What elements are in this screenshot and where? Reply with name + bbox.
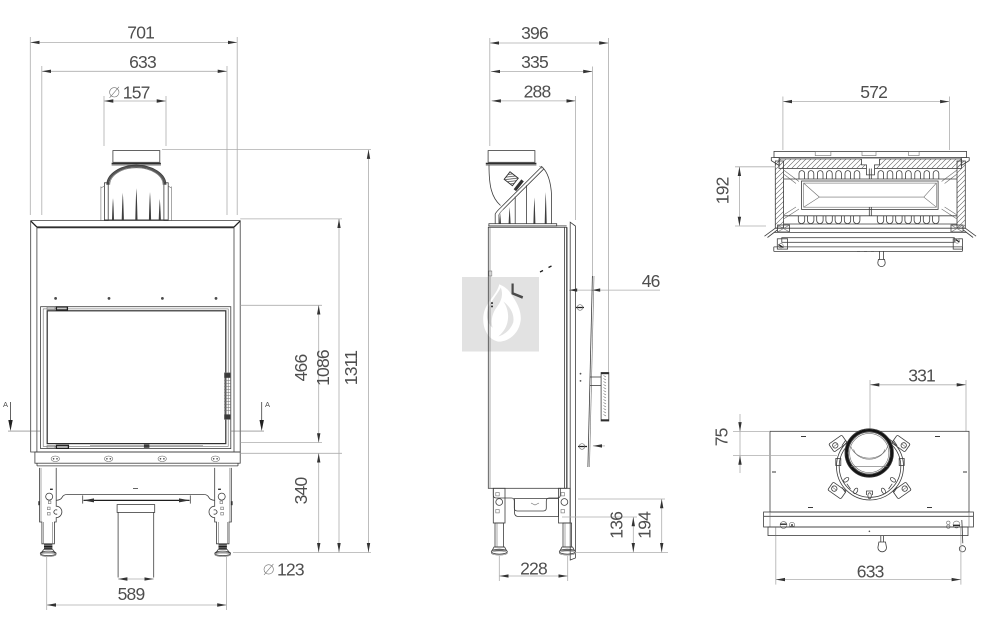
svg-text:589: 589 [118, 584, 145, 604]
svg-text:288: 288 [524, 82, 551, 102]
svg-text:340: 340 [291, 477, 311, 505]
svg-text:75: 75 [712, 428, 732, 446]
svg-text:1086: 1086 [313, 350, 333, 386]
svg-text:228: 228 [520, 559, 547, 579]
svg-text:46: 46 [642, 271, 660, 291]
svg-text:1311: 1311 [341, 351, 361, 385]
svg-text:194: 194 [634, 511, 654, 539]
svg-text:A: A [265, 400, 270, 409]
svg-text:331: 331 [908, 365, 935, 385]
svg-text:192: 192 [712, 177, 732, 204]
svg-text:633: 633 [129, 52, 156, 72]
svg-text:A: A [3, 400, 8, 409]
svg-text:136: 136 [606, 512, 626, 539]
svg-text:123: 123 [277, 559, 304, 579]
svg-text:466: 466 [291, 355, 311, 382]
svg-text:396: 396 [521, 23, 548, 43]
svg-text:701: 701 [127, 23, 154, 43]
svg-text:157: 157 [123, 82, 150, 102]
svg-text:335: 335 [521, 52, 548, 72]
svg-text:633: 633 [857, 561, 884, 581]
svg-text:572: 572 [860, 82, 887, 102]
